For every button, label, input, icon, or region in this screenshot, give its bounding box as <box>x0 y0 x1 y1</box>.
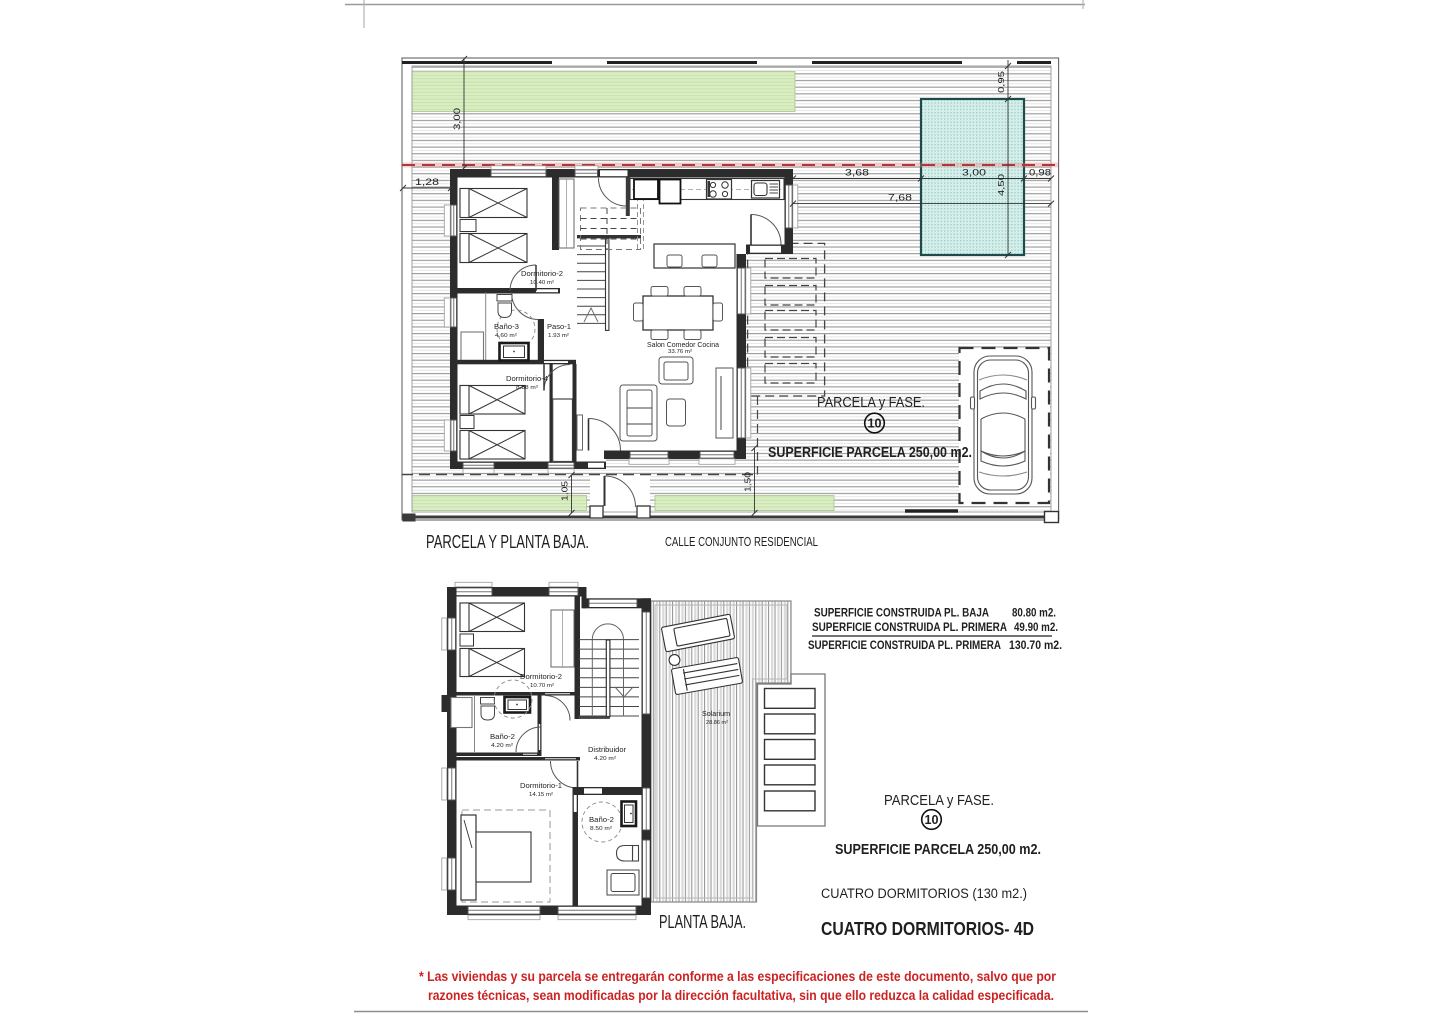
svg-text:Baño-2: Baño-2 <box>490 734 515 741</box>
svg-text:3,00: 3,00 <box>452 108 462 130</box>
svg-text:4,50: 4,50 <box>996 174 1006 196</box>
svg-text:Dormitorio-4: Dormitorio-4 <box>506 376 548 383</box>
svg-text:4.20 m²: 4.20 m² <box>491 743 513 749</box>
svg-text:0,98: 0,98 <box>1029 168 1051 178</box>
svg-text:3,68: 3,68 <box>845 168 869 178</box>
svg-text:8.50 m²: 8.50 m² <box>590 826 612 832</box>
svg-text:CALLE CONJUNTO RESIDENCIAL: CALLE CONJUNTO RESIDENCIAL <box>665 534 818 549</box>
svg-text:1,05: 1,05 <box>560 481 570 501</box>
svg-text:Dormitorio-1: Dormitorio-1 <box>520 783 562 790</box>
svg-text:8.88 m²: 8.88 m² <box>516 385 538 391</box>
svg-text:PARCELA y FASE.: PARCELA y FASE. <box>817 395 925 411</box>
svg-text:10: 10 <box>925 813 939 827</box>
svg-text:14.15 m²: 14.15 m² <box>529 792 553 798</box>
svg-text:1,28: 1,28 <box>415 177 439 187</box>
svg-text:10.70 m²: 10.70 m² <box>530 683 554 689</box>
svg-text:1,50: 1,50 <box>743 472 753 492</box>
svg-text:10.40 m²: 10.40 m² <box>530 280 554 286</box>
svg-text:SUPERFICIE PARCELA 250,00 m2.: SUPERFICIE PARCELA 250,00 m2. <box>768 445 972 461</box>
svg-text:80.80 m2.: 80.80 m2. <box>1012 606 1056 620</box>
svg-text:PLANTA BAJA.: PLANTA BAJA. <box>659 911 746 932</box>
svg-text:Solarium: Solarium <box>702 711 730 718</box>
svg-text:33.76 m²: 33.76 m² <box>668 349 692 355</box>
svg-text:* Las viviendas y su parcela s: * Las viviendas y su parcela se entregar… <box>419 968 1056 984</box>
svg-text:PARCELA y FASE.: PARCELA y FASE. <box>884 793 994 809</box>
svg-text:130.70 m2.: 130.70 m2. <box>1009 638 1062 652</box>
svg-text:4.60 m²: 4.60 m² <box>495 333 517 339</box>
svg-text:10: 10 <box>868 417 882 431</box>
svg-text:PARCELA Y PLANTA BAJA.: PARCELA Y PLANTA BAJA. <box>426 531 589 552</box>
svg-text:49.90 m2.: 49.90 m2. <box>1014 620 1058 634</box>
svg-text:Dormitorio-2: Dormitorio-2 <box>521 271 563 278</box>
svg-text:1.93 m²: 1.93 m² <box>548 333 569 339</box>
svg-text:Baño-3: Baño-3 <box>494 324 519 331</box>
svg-text:Distribuidor: Distribuidor <box>588 747 627 754</box>
svg-text:4.20 m²: 4.20 m² <box>594 756 616 762</box>
svg-text:SUPERFICIE CONSTRUIDA PL. PRIM: SUPERFICIE CONSTRUIDA PL. PRIMERA <box>808 638 1001 652</box>
svg-text:7,68: 7,68 <box>888 193 912 203</box>
svg-text:CUATRO DORMITORIOS (130 m2.): CUATRO DORMITORIOS (130 m2.) <box>821 886 1027 901</box>
svg-text:razones técnicas, sean modific: razones técnicas, sean modificadas por l… <box>428 987 1054 1003</box>
svg-text:28.86 m²: 28.86 m² <box>706 720 728 726</box>
svg-text:Baño-2: Baño-2 <box>589 817 614 824</box>
svg-text:3,00: 3,00 <box>962 168 986 178</box>
svg-text:Dormitorio-2: Dormitorio-2 <box>520 674 562 681</box>
svg-text:SUPERFICIE CONSTRUIDA PL. BAJA: SUPERFICIE CONSTRUIDA PL. BAJA <box>814 606 989 620</box>
svg-text:CUATRO DORMITORIOS- 4D: CUATRO DORMITORIOS- 4D <box>821 919 1034 939</box>
svg-text:SUPERFICIE CONSTRUIDA PL. PRIM: SUPERFICIE CONSTRUIDA PL. PRIMERA <box>812 620 1007 634</box>
svg-text:0,95: 0,95 <box>996 71 1006 93</box>
svg-text:SUPERFICIE PARCELA 250,00 m2.: SUPERFICIE PARCELA 250,00 m2. <box>835 842 1041 858</box>
svg-text:Salon Comedor Cocina: Salon Comedor Cocina <box>647 340 720 349</box>
svg-text:Paso-1: Paso-1 <box>547 324 571 331</box>
